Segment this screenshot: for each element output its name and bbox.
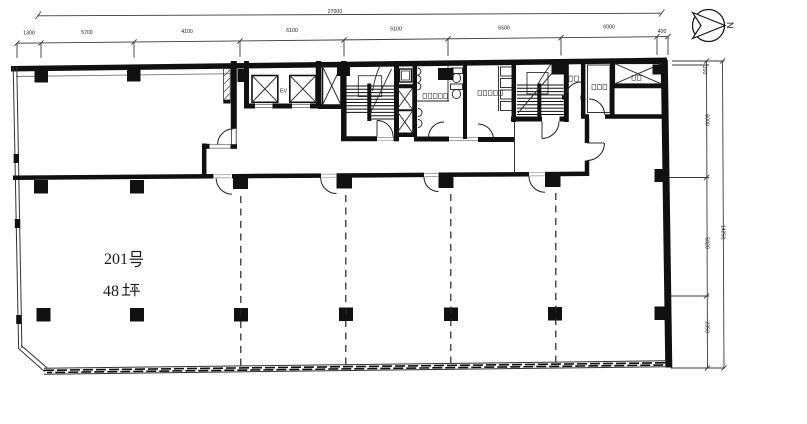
- svg-text:N: N: [725, 22, 735, 29]
- svg-text:14250: 14250: [720, 225, 726, 240]
- svg-text:48: 48: [103, 283, 119, 300]
- svg-text:2350: 2350: [704, 321, 710, 333]
- svg-text:6000: 6000: [603, 25, 615, 31]
- svg-text:201: 201: [104, 251, 128, 268]
- svg-text:6100: 6100: [390, 27, 402, 33]
- svg-text:5700: 5700: [81, 30, 93, 36]
- svg-text:5020: 5020: [704, 237, 710, 249]
- svg-text:200: 200: [701, 66, 707, 75]
- svg-text:1300: 1300: [23, 31, 35, 37]
- svg-text:27000: 27000: [328, 9, 343, 15]
- svg-text:EV: EV: [280, 89, 288, 95]
- svg-text:6500: 6500: [498, 26, 510, 32]
- svg-text:400: 400: [658, 29, 667, 35]
- svg-text:4100: 4100: [181, 29, 193, 35]
- svg-text:6100: 6100: [286, 28, 298, 34]
- svg-text:6000: 6000: [704, 114, 710, 126]
